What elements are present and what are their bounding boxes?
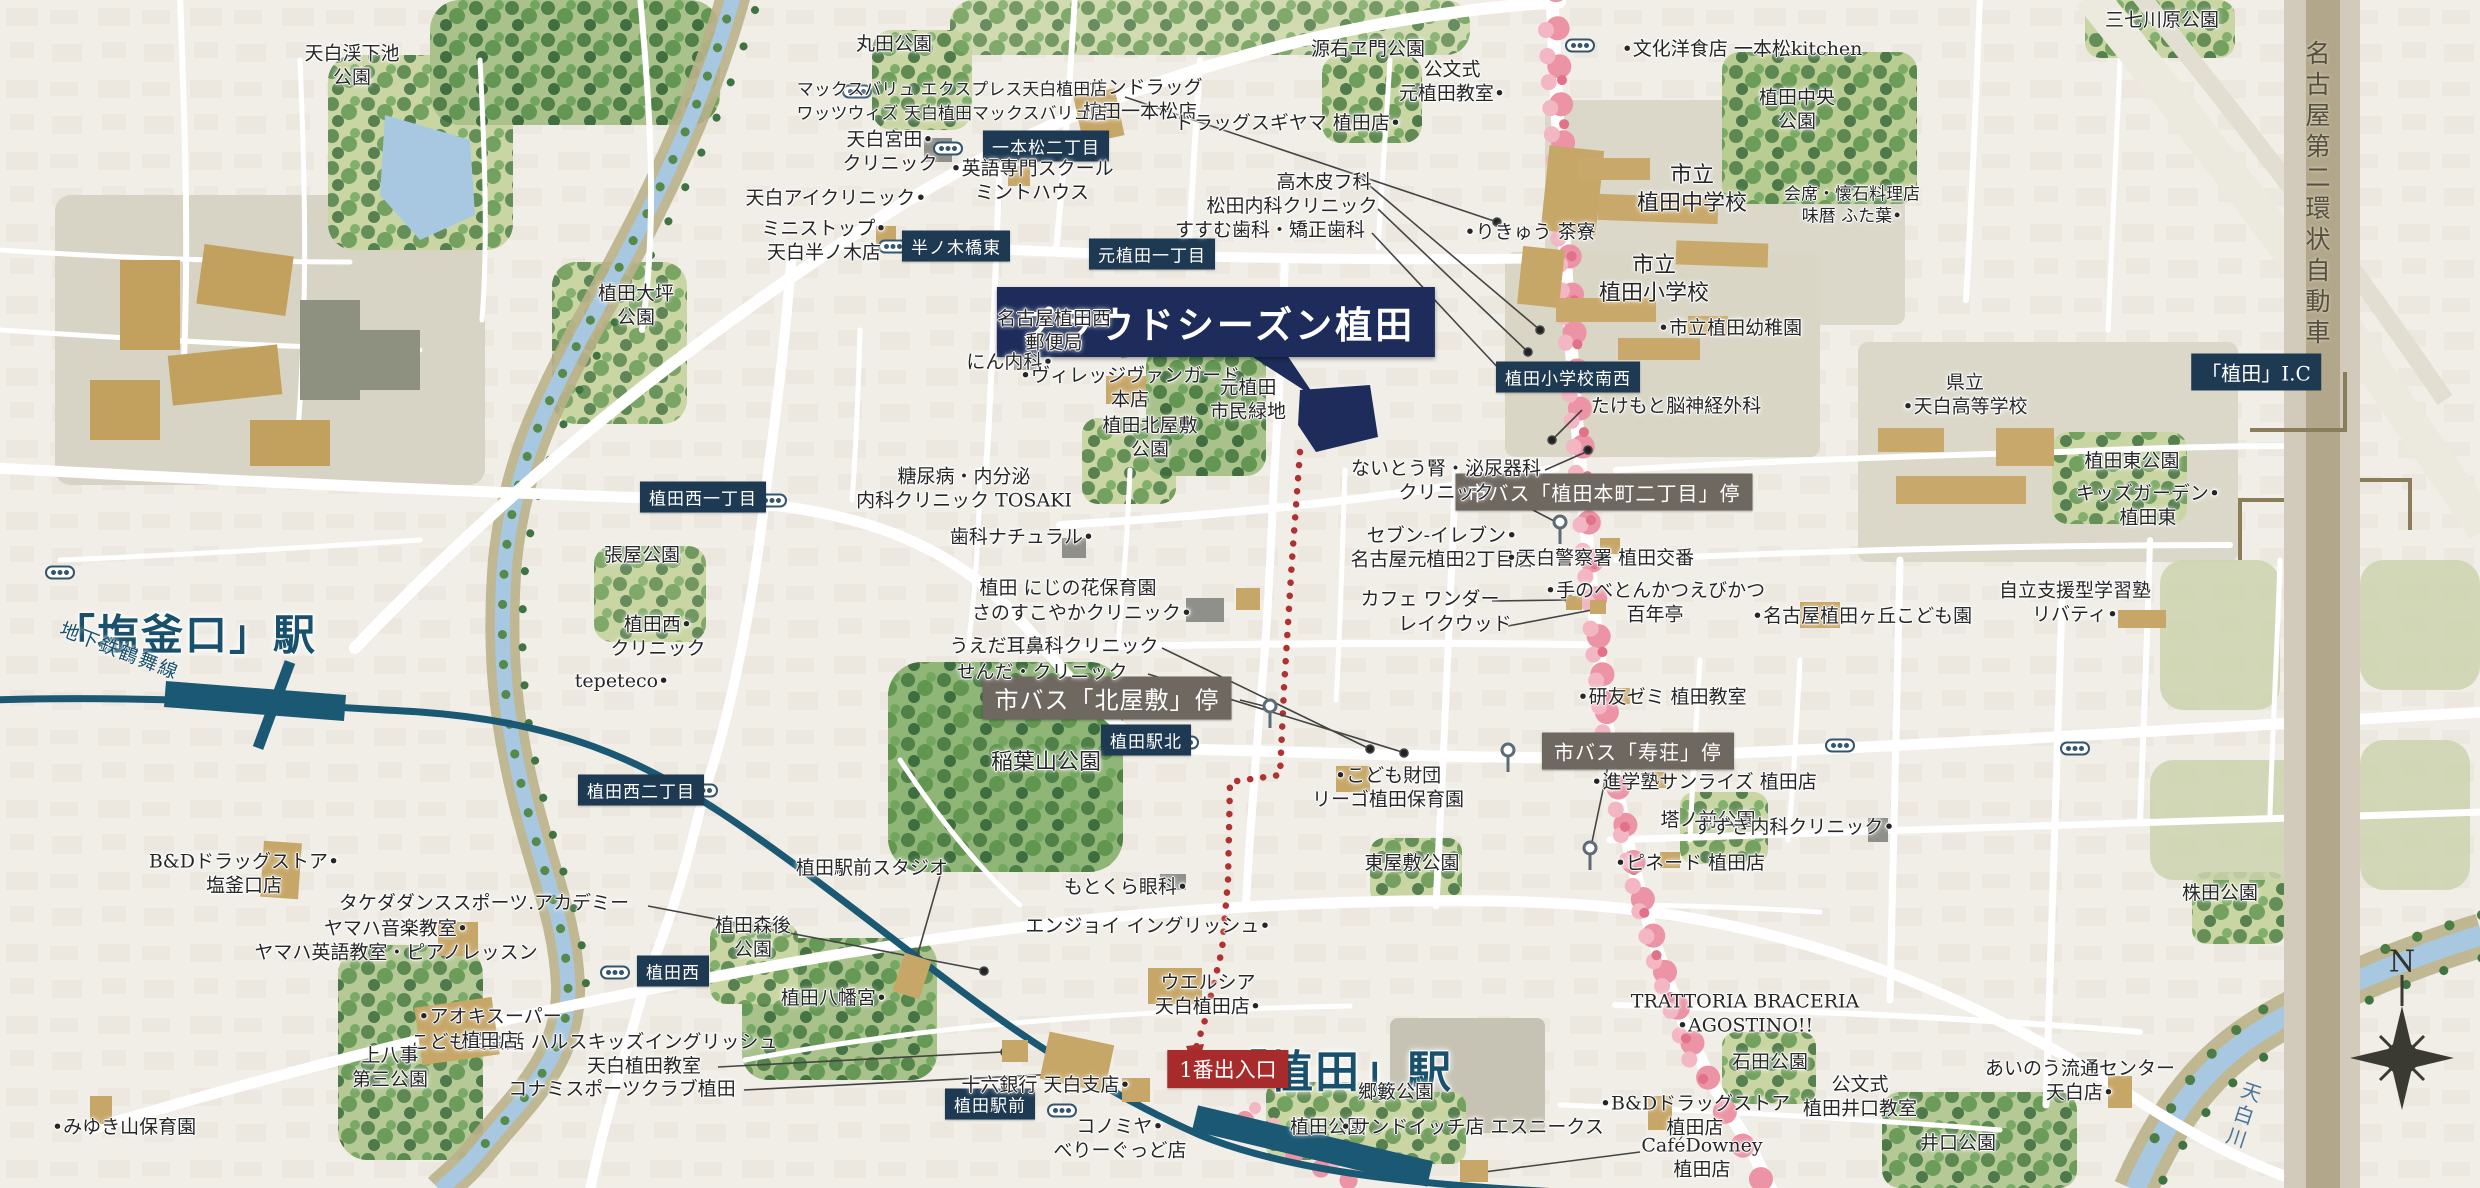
poi-takeda-dance: タケダダンススポーツ.アカデミー: [339, 891, 629, 915]
poi-trattoria-agostino: TRATTORIA BRACERIA •AGOSTINO!!: [1631, 990, 1859, 1039]
ix-uedanishi-1: 植田西一丁目: [640, 482, 766, 513]
ix-motoueda-1: 元植田一丁目: [1089, 239, 1215, 270]
poi-kamiyagoto-park: 上八事 第三公園: [352, 1044, 428, 1093]
poi-konami-sports: コナミスポーツクラブ植田: [508, 1077, 736, 1101]
poi-watts-with: ワッツウィズ 天白植田マックスバリュ店: [797, 104, 1108, 126]
poi-higashiyashiki-park: 東屋敷公園: [1364, 851, 1459, 875]
poi-ueda-kindergarten: •市立植田幼稚園: [1658, 316, 1802, 340]
poi-miyukiyama-hoikuen: •みゆき山保育園: [52, 1115, 196, 1139]
poi-ueda-junior-high: 市立 植田中学校: [1637, 162, 1747, 218]
poi-ministop: ミニストップ• 天白半ノ木店: [761, 217, 886, 266]
ix-hannoki-bashi-higashi: 半ノ木橋東: [902, 231, 1010, 262]
poi-sanosukoyaka-clinic: さのすこやかクリニック•: [972, 601, 1192, 625]
poi-shika-natural: 歯科ナチュラル•: [950, 525, 1094, 549]
poi-motokura-ganka: もとくら眼科•: [1064, 875, 1188, 899]
poi-ueda-otsubo-park: 植田大坪 公園: [598, 282, 674, 331]
poi-cafe-downey: CaféDowney 植田店: [1641, 1134, 1762, 1183]
poi-kitayashiki-park: 植田北屋敷 公園: [1102, 414, 1197, 463]
poi-tenpakukei-pond-park: 天白渓下池 公園: [304, 42, 399, 91]
poi-iguchi-park: 井口公園: [1920, 1131, 1996, 1155]
poi-rikyu-saryo: •りきゅう 茶寮: [1464, 220, 1595, 244]
ix-ueda-ekikita: 植田駅北: [1101, 725, 1191, 756]
poi-hyakunentei: •手のべとんかつえびかつ 百年亭: [1545, 579, 1765, 628]
poi-kenyu-zemi: •研友ゼミ 植田教室: [1577, 685, 1746, 709]
poi-drug-sugiyama: ドラッグスギヤマ 植田店•: [1175, 111, 1401, 135]
poi-kabuta-park: 株田公園: [2182, 881, 2258, 905]
poi-cafe-wonder: カフェ ワンダー: [1360, 587, 1499, 611]
poi-ueda-nishi-clinic: 植田西• クリニック: [610, 613, 705, 662]
poi-kids-garden: キッズガーデン• 植田東: [2076, 482, 2220, 531]
poi-maxvalu-express: マックスバリュ エクスプレス天白植田店: [797, 80, 1107, 102]
poi-lakewood: レイクウッド: [1398, 612, 1512, 636]
poi-susumu-shika: すすむ歯科・矯正歯科: [1175, 218, 1365, 242]
poi-ueda-ekimae-studio: 植田駅前スタジオ: [796, 856, 948, 880]
poi-ueda-jibika: うえだ耳鼻科クリニック: [949, 634, 1158, 658]
ix-uedanishi: 植田西: [637, 956, 709, 987]
ix-ueda-sho-nansei: 植田小学校南西: [1496, 362, 1640, 393]
poi-morigo-park: 植田森後 公園: [715, 914, 791, 963]
poi-tosaki-clinic: 糖尿病・内分泌 内科クリニック TOSAKI: [856, 465, 1072, 514]
poi-hachimangu: 植田八幡宮•: [781, 986, 887, 1010]
poi-enjoy-english: エンジョイ イングリッシュ•: [1025, 914, 1270, 938]
poi-tepeteco: tepeteco•: [575, 669, 669, 693]
compass-n-label: N: [2389, 945, 2415, 980]
poi-misakawara-park: 三七川原公園: [2105, 8, 2219, 32]
busstop-kotobukiso: 市バス「寿荘」停: [1542, 733, 1734, 770]
poi-post-office: 名古屋植田西 郵便局: [997, 307, 1111, 356]
poi-ainou-center: あいのう流通センター 天白店•: [1985, 1057, 2175, 1106]
poi-tenpaku-police: •天白警察署 植田交番: [1506, 546, 1694, 570]
poi-ishida-park: 石田公園: [1732, 1050, 1808, 1074]
poi-suzuki-naika: すずき内科クリニック•: [1693, 815, 1894, 839]
station-entrance-1: 1番出入口: [1167, 1050, 1288, 1088]
poi-village-vanguard: •ヴィレッジヴァンガード 本店: [1020, 364, 1240, 413]
poi-kumon-motoueda: 公文式 元植田教室•: [1399, 58, 1505, 107]
poi-naito-clinic: ないとう腎・泌尿器科 クリニック: [1351, 457, 1541, 506]
poi-riigo-hoikuen: •こども財団 リーゴ植田保育園: [1312, 764, 1464, 813]
poi-bd-drug-shiogamaguchi: B&Dドラッグストア• 塩釜口店: [149, 850, 339, 899]
poi-takagi-hifuka: 高木皮フ科: [1276, 170, 1371, 194]
poi-matsuda-naika: 松田内科クリニック: [1206, 194, 1377, 218]
poi-liberty-juku: 自立支援型学習塾 リバティ•: [1999, 579, 2151, 628]
poi-maruta-park: 丸田公園: [856, 32, 932, 56]
poi-inabayama-park: 稲葉山公園: [991, 749, 1101, 777]
poi-bd-drug-ueda: •B&Dドラッグストア 植田店: [1600, 1092, 1790, 1141]
poi-nijinohana-hoikuen: 植田 にじの花保育園: [979, 576, 1156, 600]
poi-aoki-super: •アオキスーパー 植田店: [418, 1005, 561, 1054]
ix-uedanishi-2: 植田西二丁目: [578, 775, 704, 806]
poi-ueda-chuo-park: 植田中央 公園: [1759, 86, 1835, 135]
poi-ueda-higashi-park: 植田東公園: [2084, 449, 2179, 473]
poi-sandwich-esnix: •サンドイッチ店 エスニークス: [1340, 1115, 1604, 1139]
highway-label: 名古屋第二環状自動車: [2298, 40, 2334, 350]
poi-motoueda-ryokuchi: 元植田 市民緑地: [1210, 376, 1286, 425]
poi-ajidoki-futaba: 会席・懐石料理店 味暦 ふた葉•: [1784, 184, 1920, 228]
poi-tenpaku-miyata-clinic: 天白宮田• クリニック: [842, 128, 937, 177]
poi-konomiya: コノミヤ• べりーぐっど店: [1053, 1115, 1186, 1164]
poi-mint-house: •英語専門スクール ミントハウス: [950, 157, 1113, 206]
poi-senda-clinic: せんだ・クリニック: [956, 660, 1127, 684]
poi-ueda-elementary: 市立 植田小学校: [1599, 252, 1709, 308]
poi-tenpaku-eye-clinic: 天白アイクリニック•: [746, 186, 927, 210]
poi-pinede: •ピネード 植田店: [1615, 851, 1765, 875]
poi-kumon-iguchi: 公文式 植田井口教室: [1803, 1073, 1917, 1122]
poi-uedagaoka-kodomoen: •名古屋植田ヶ丘こども園: [1752, 604, 1972, 628]
poi-goso-park: 郷籔公園: [1358, 1080, 1434, 1104]
poi-ipponmatsu-kitchen: •文化洋食店 一本松kitchen: [1622, 37, 1863, 61]
poi-tenpaku-high-school: 県立 •天白高等学校: [1902, 371, 2027, 420]
poi-juroku-bank: 十六銀行 天白支店•: [961, 1073, 1130, 1097]
poi-yamaha-music: ヤマハ音楽教室• ヤマハ英語教室・ピアノレッスン: [254, 917, 537, 966]
poi-hariya-park: 張屋公園: [604, 543, 680, 567]
location-map: 「塩釜口」駅 「植田」駅 「植田」I.C 1番出入口 プラウドシーズン植田 地下…: [0, 0, 2480, 1188]
ueda-ic-label: 「植田」I.C: [2191, 354, 2321, 391]
poi-takemoto-neuro: たけもと脳神経外科: [1591, 394, 1762, 418]
poi-welcia: ウエルシア 天白植田店•: [1155, 971, 1261, 1020]
poi-sunrise-juku: •進学塾サンライズ 植田店: [1591, 770, 1817, 794]
poi-tenpaku-ueda-kyoshitsu: 天白植田教室: [587, 1054, 701, 1078]
